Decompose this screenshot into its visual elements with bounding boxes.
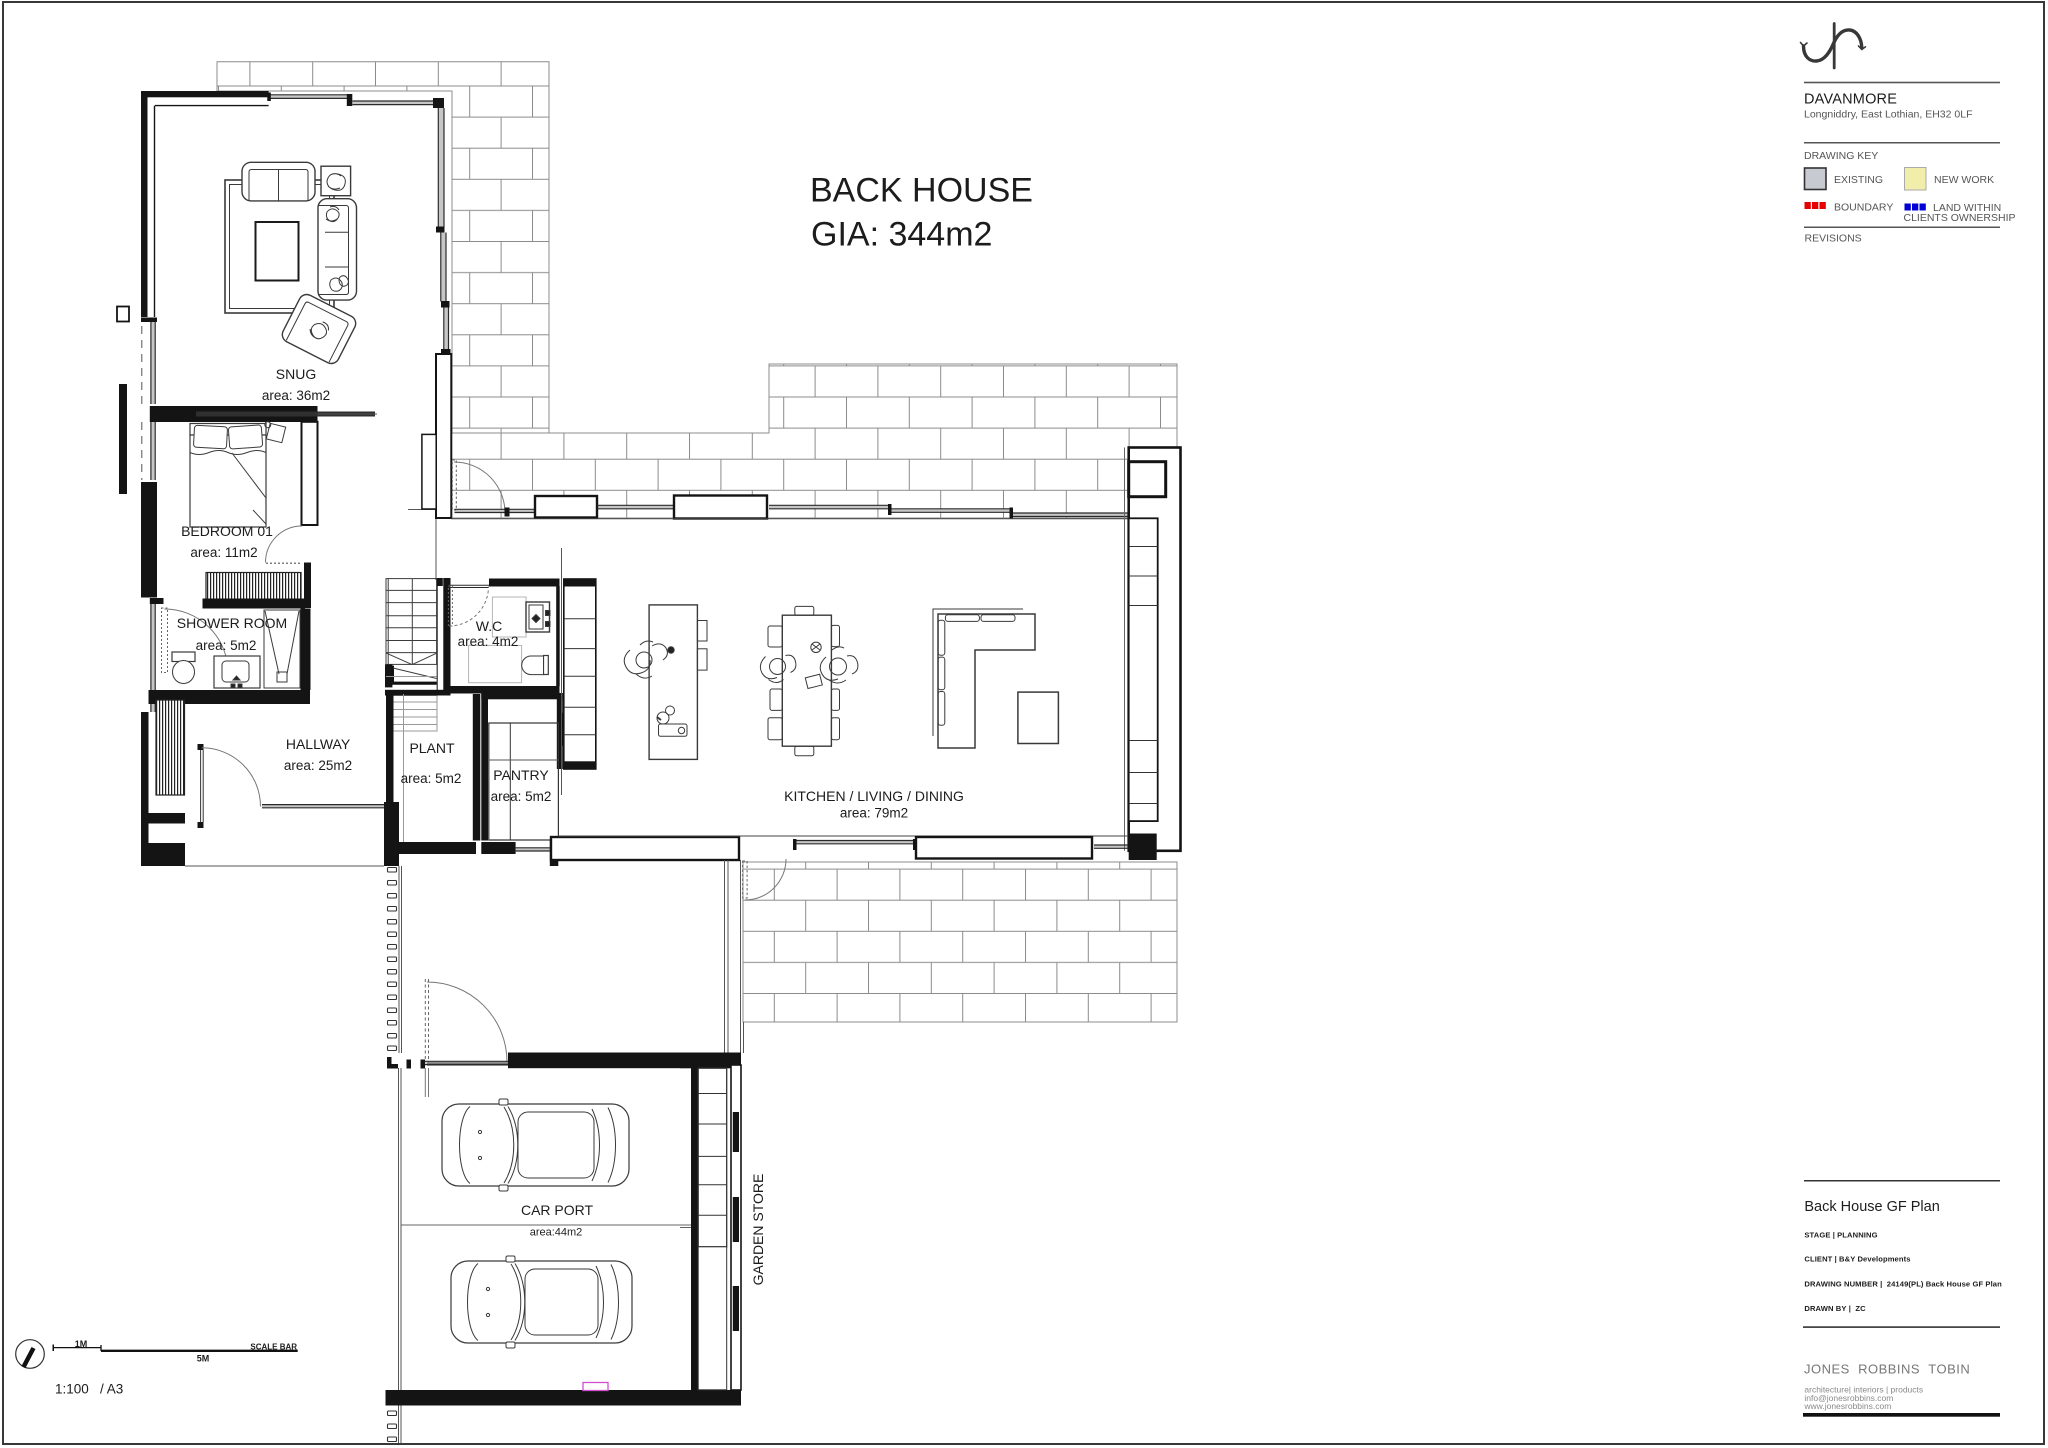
svg-text:DRAWN BY | ZC: DRAWN BY | ZC [1804, 1304, 1866, 1313]
svg-text:area: 25m2: area: 25m2 [284, 758, 352, 773]
svg-text:BOUNDARY: BOUNDARY [1834, 202, 1893, 214]
svg-text:area:44m2: area:44m2 [530, 1227, 583, 1239]
svg-text:area: 11m2: area: 11m2 [190, 545, 257, 560]
svg-text:CLIENTS OWNERSHIP: CLIENTS OWNERSHIP [1904, 212, 2016, 224]
svg-text:area: 5m2: area: 5m2 [401, 771, 462, 786]
svg-text:BACK HOUSE: BACK HOUSE [810, 172, 1033, 210]
svg-text:Longniddry, East Lothian, EH32: Longniddry, East Lothian, EH32 0LF [1804, 109, 1973, 121]
svg-text:CAR PORT: CAR PORT [521, 1202, 594, 1218]
svg-text:GARDEN STORE: GARDEN STORE [750, 1174, 766, 1286]
svg-text:1M: 1M [75, 1339, 88, 1349]
svg-text:DRAWING NUMBER | 24149(PL) Ba: DRAWING NUMBER | 24149(PL) Back House GF… [1804, 1279, 2002, 1288]
svg-text:area: 4m2: area: 4m2 [458, 634, 519, 649]
svg-text:area: 5m2: area: 5m2 [491, 789, 552, 804]
svg-text:JONES ROBBINS TOBIN: JONES ROBBINS TOBIN [1804, 1361, 1970, 1376]
svg-text:Back House GF Plan: Back House GF Plan [1804, 1199, 1939, 1215]
svg-text:REVISIONS: REVISIONS [1805, 233, 1862, 245]
svg-text:W.C: W.C [476, 618, 502, 634]
svg-text:1:100 / A3: 1:100 / A3 [55, 1382, 123, 1397]
svg-text:KITCHEN / LIVING / DINING: KITCHEN / LIVING / DINING [784, 788, 964, 804]
svg-text:5M: 5M [197, 1354, 210, 1364]
svg-text:EXISTING: EXISTING [1834, 174, 1883, 186]
svg-text:PLANT: PLANT [409, 740, 455, 756]
svg-text:BEDROOM 01: BEDROOM 01 [181, 523, 273, 539]
svg-text:www.jonesrobbins.com: www.jonesrobbins.com [1803, 1401, 1891, 1411]
svg-text:DRAWING KEY: DRAWING KEY [1804, 150, 1878, 162]
svg-text:HALLWAY: HALLWAY [286, 736, 351, 752]
svg-text:NEW WORK: NEW WORK [1934, 174, 1994, 186]
svg-text:SCALE BAR: SCALE BAR [250, 1343, 297, 1352]
svg-text:DAVANMORE: DAVANMORE [1804, 92, 1897, 108]
svg-text:SNUG: SNUG [276, 366, 316, 382]
svg-text:STAGE | PLANNING: STAGE | PLANNING [1804, 1230, 1877, 1239]
svg-text:area: 79m2: area: 79m2 [840, 806, 908, 821]
svg-text:CLIENT | B&Y Developments: CLIENT | B&Y Developments [1804, 1254, 1910, 1263]
svg-text:area: 5m2: area: 5m2 [196, 638, 257, 653]
svg-text:PANTRY: PANTRY [493, 767, 549, 783]
svg-text:SHOWER ROOM: SHOWER ROOM [177, 615, 287, 631]
svg-text:area: 36m2: area: 36m2 [262, 388, 330, 403]
svg-text:GIA: 344m2: GIA: 344m2 [811, 216, 992, 254]
